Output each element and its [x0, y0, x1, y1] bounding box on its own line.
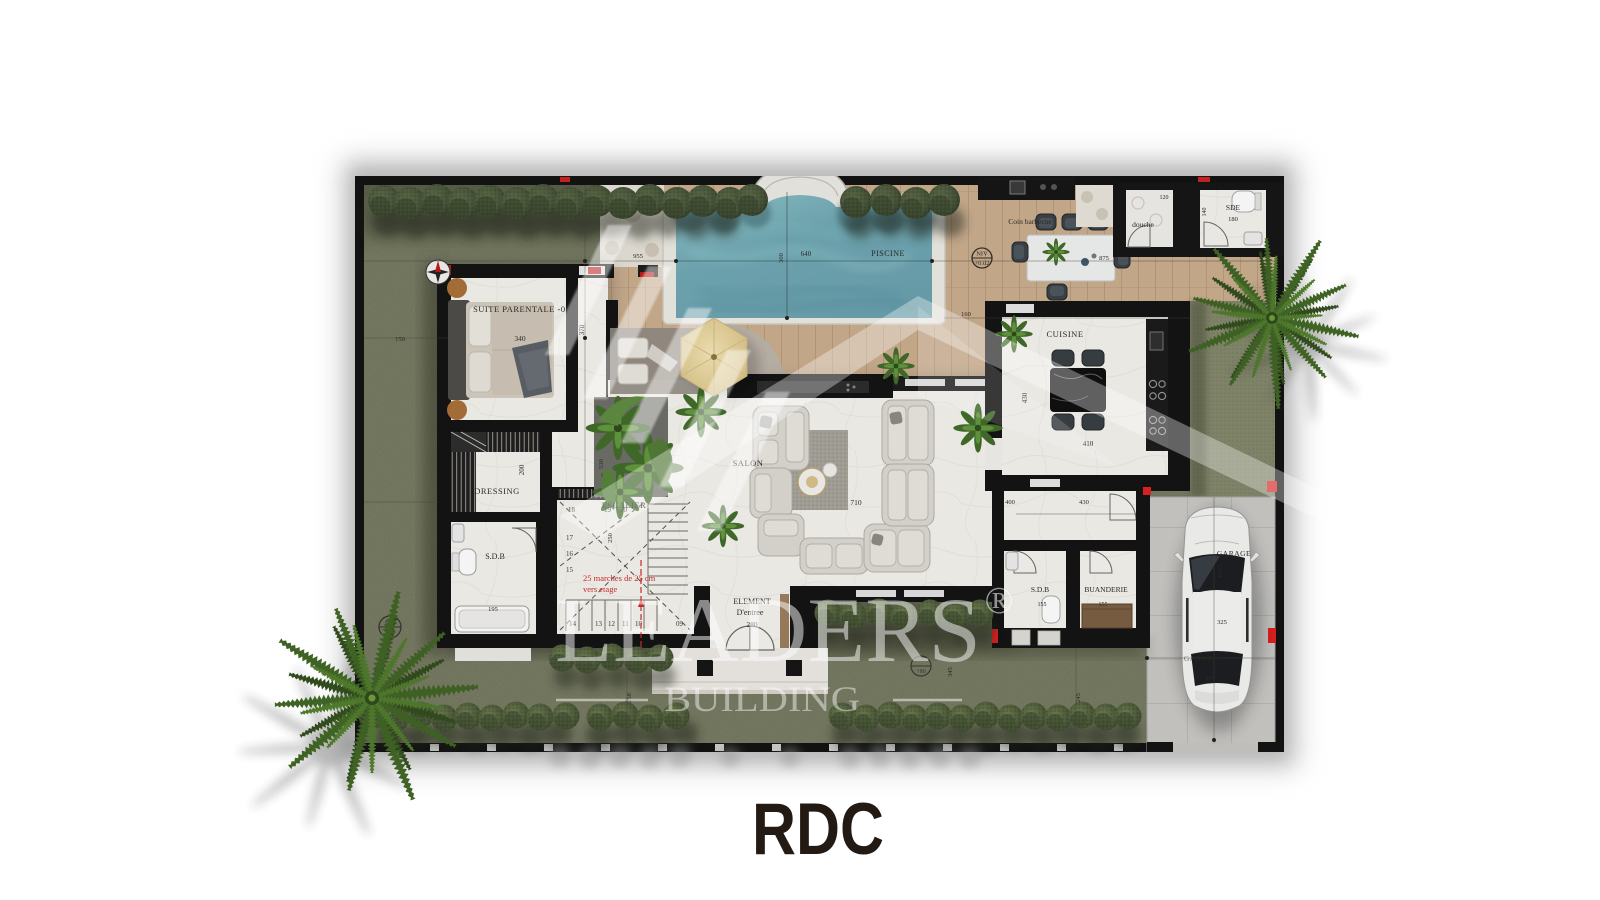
svg-text:LEADERS: LEADERS — [555, 579, 981, 681]
svg-text:®: ® — [985, 580, 1014, 622]
svg-text:BUILDING: BUILDING — [664, 679, 860, 719]
svg-text:RDC: RDC — [752, 789, 884, 870]
